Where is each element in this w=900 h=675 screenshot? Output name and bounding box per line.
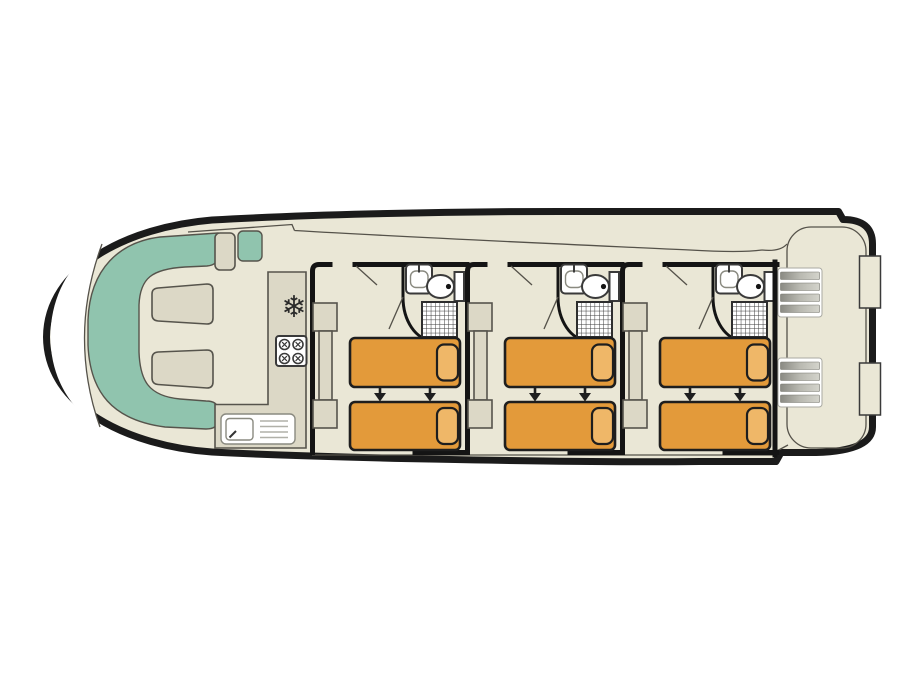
lounge-table-bottom [152,350,213,388]
stairs-2 [778,358,822,407]
stove-icon [276,336,307,366]
boat-floor-plan: ❄ [0,0,900,675]
gate-2 [860,363,881,415]
stairs-1 [778,268,822,317]
floor-plan-svg: ❄ [0,0,900,675]
side-seat [238,231,262,261]
gate-1 [860,256,881,308]
lounge-table-top [152,284,213,324]
galley-sink-icon [221,414,295,444]
fridge-freezer-icon: ❄ [281,290,306,325]
side-step [215,233,235,270]
